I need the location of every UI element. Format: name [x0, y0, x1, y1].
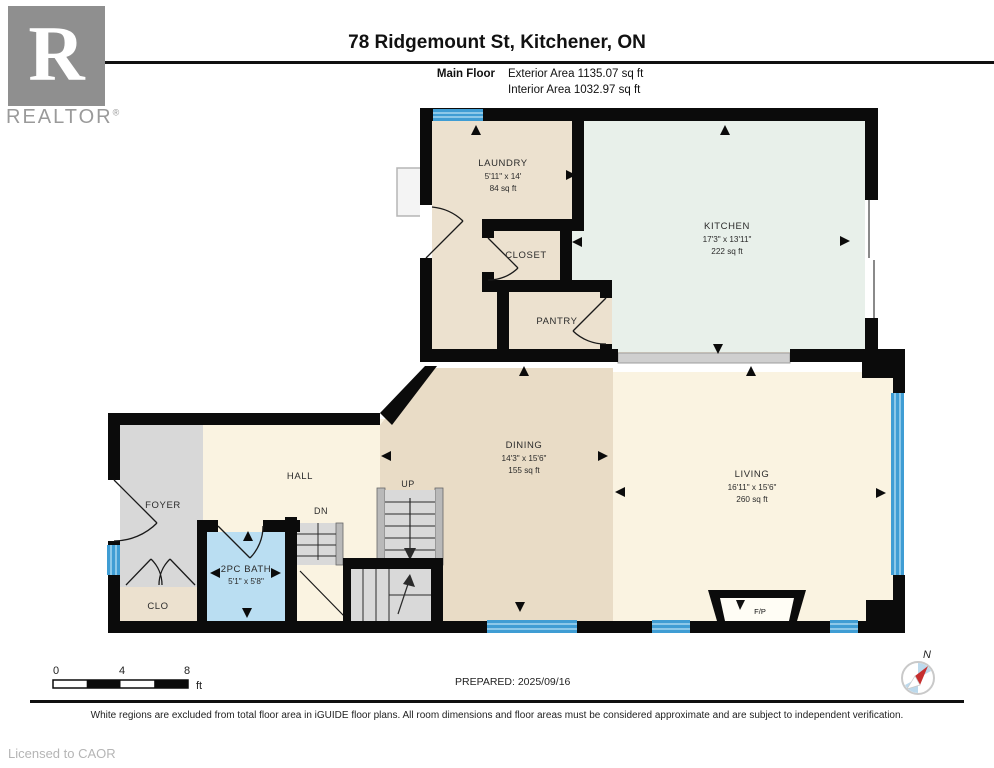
- kitchen-area: 222 sq ft: [711, 247, 743, 256]
- realtor-logo-letter: R: [28, 15, 84, 93]
- page-title: 78 Ridgemount St, Kitchener, ON: [0, 32, 994, 54]
- stairs-up-label: UP: [401, 479, 415, 489]
- dining-area: 155 sq ft: [508, 466, 540, 475]
- dining-dims: 14'3" x 15'6": [502, 454, 547, 463]
- header-divider: [33, 61, 994, 64]
- exterior-step: [397, 168, 422, 216]
- scale-bar-seg2: [87, 680, 121, 688]
- kitchen-living-open-strip: [618, 353, 790, 363]
- kitchen-label: KITCHEN: [704, 221, 750, 232]
- foyer-sidelight-window: [107, 545, 120, 575]
- living-label: LIVING: [735, 469, 770, 480]
- realtor-logo-icon: R: [8, 6, 105, 106]
- clo-label: CLO: [147, 601, 168, 612]
- exterior-area-label: Exterior Area 1135.07 sq ft: [508, 68, 643, 80]
- stairs-dn-label: DN: [314, 506, 328, 516]
- licensed-to: Licensed to CAOR: [8, 746, 116, 761]
- fireplace-label: F/P: [754, 607, 766, 616]
- dn-stairs-rail: [336, 523, 343, 565]
- compass: N: [895, 645, 955, 701]
- prepared-date: PREPARED: 2025/09/16: [455, 676, 570, 688]
- scale-unit: ft: [196, 680, 202, 692]
- scale-tick-0: 0: [53, 665, 59, 677]
- laundry-area: 84 sq ft: [490, 184, 518, 193]
- footer-divider: [30, 700, 964, 703]
- floor-name-label: Main Floor: [385, 68, 495, 80]
- scale-tick-4: 4: [119, 665, 125, 677]
- laundry-window: [433, 109, 483, 121]
- up-stairs-rail-right: [435, 488, 443, 565]
- compass-north-label: N: [923, 649, 931, 661]
- disclaimer-text: White regions are excluded from total fl…: [0, 710, 994, 721]
- dining-label: DINING: [506, 440, 543, 451]
- floor-plan-page: R REALTOR® 78 Ridgemount St, Kitchener, …: [0, 0, 994, 768]
- hall-label: HALL: [287, 471, 313, 482]
- closet-label: CLOSET: [505, 250, 547, 261]
- living-dims: 16'11" x 15'6": [728, 483, 777, 492]
- living-bottom-window-left: [652, 620, 690, 633]
- laundry-dims: 5'11" x 14': [485, 172, 522, 181]
- bath-dims: 5'1" x 5'8": [228, 577, 264, 586]
- scale-bar: 0 4 8 ft: [40, 660, 220, 696]
- living-area: 260 sq ft: [736, 495, 768, 504]
- floor-plan-drawing: LAUNDRY 5'11" x 14' 84 sq ft CLOSET PANT…: [0, 95, 994, 655]
- living-window: [891, 393, 904, 575]
- up-stairs-rail-left: [377, 488, 385, 565]
- laundry-label: LAUNDRY: [478, 158, 527, 169]
- fireplace: [708, 590, 806, 621]
- living-bottom-window-right: [830, 620, 858, 633]
- scale-tick-8: 8: [184, 665, 190, 677]
- foyer-label: FOYER: [145, 500, 181, 511]
- dining-bottom-window: [487, 620, 577, 633]
- bath-label: 2PC BATH: [221, 564, 272, 575]
- kitchen-dims: 17'3" x 13'11": [703, 235, 752, 244]
- pantry-label: PANTRY: [536, 316, 577, 327]
- scale-bar-seg4: [154, 680, 188, 688]
